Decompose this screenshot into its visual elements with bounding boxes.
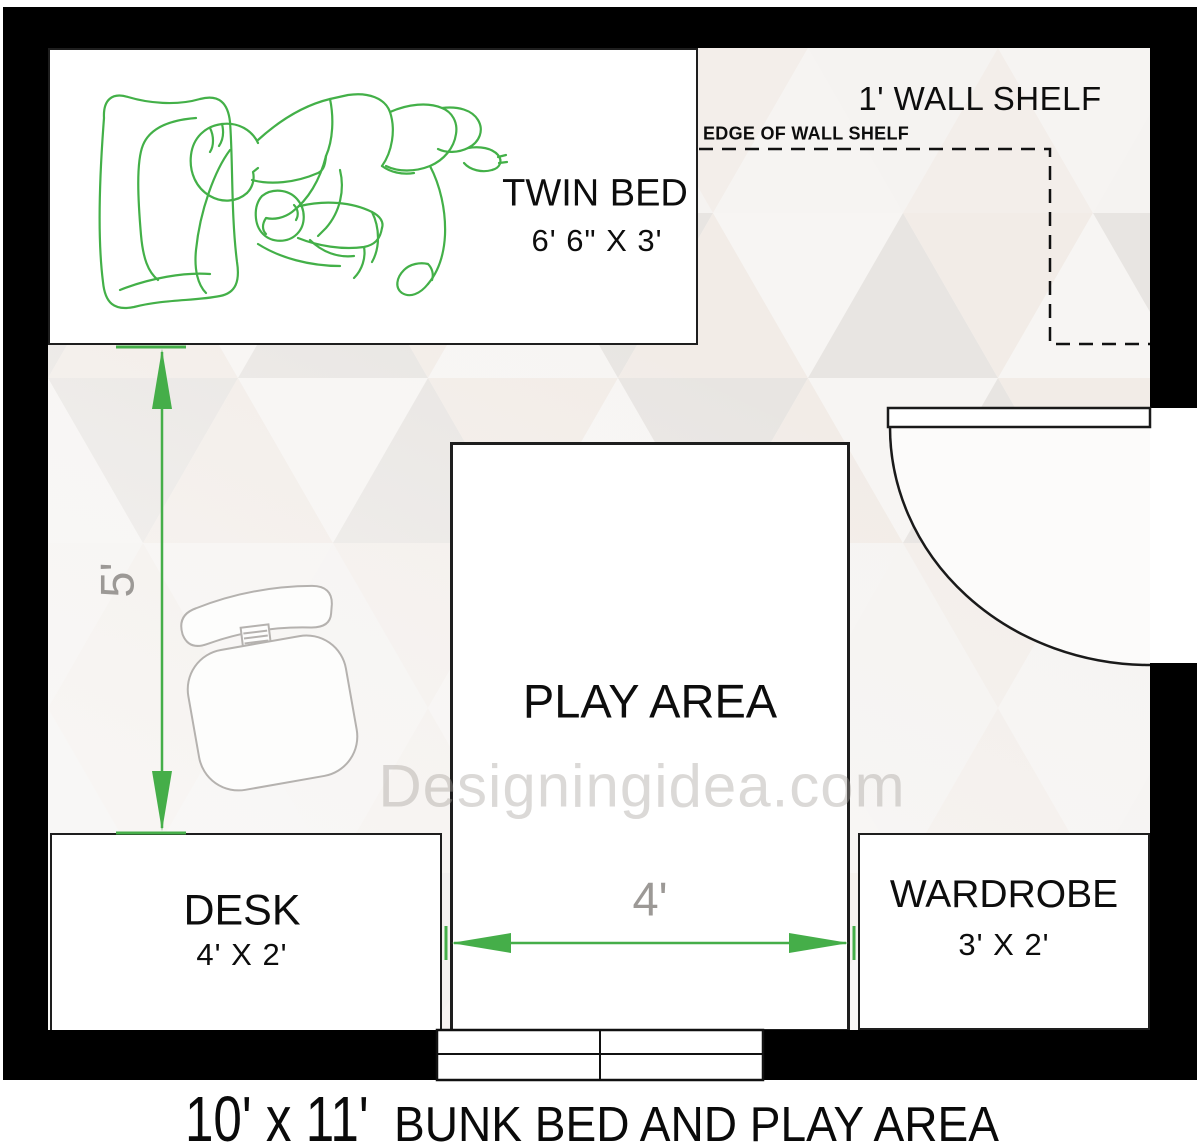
play-area-label: PLAY AREA: [523, 674, 777, 729]
window-icon: [437, 1030, 763, 1080]
wall-shelf-label: 1' WALL SHELF: [858, 80, 1101, 118]
twin-bed-label: TWIN BED: [502, 173, 688, 216]
plan-title-dimensions: 10' x 11': [185, 1082, 369, 1147]
wall-right-lower: [1150, 663, 1197, 1080]
wall-left: [3, 7, 48, 1080]
wardrobe-label: WARDROBE: [890, 873, 1118, 917]
wall-right-upper: [1150, 7, 1197, 408]
twin-bed-size: 6' 6" X 3': [531, 223, 662, 259]
watermark: Designingidea.com: [378, 752, 905, 821]
play-area: [450, 442, 850, 1032]
wall-bottom-left: [3, 1030, 437, 1080]
desk-label: DESK: [183, 887, 300, 936]
left-height-dimension-label: 5': [90, 562, 145, 597]
floor-plan: TWIN BED 6' 6" X 3' 1' WALL SHELF EDGE O…: [0, 0, 1200, 1147]
wardrobe-size: 3' X 2': [958, 927, 1049, 963]
desk-size: 4' X 2': [196, 937, 287, 973]
plan-title-text: BUNK BED AND PLAY AREA: [394, 1097, 999, 1147]
wall-bottom-right: [763, 1030, 1197, 1080]
wall-top: [3, 7, 1197, 48]
play-width-dimension-label: 4': [632, 872, 667, 927]
plan-title: 10' x 11' BUNK BED AND PLAY AREA: [0, 1082, 1200, 1146]
wall-shelf-edge-label: EDGE OF WALL SHELF: [703, 124, 909, 145]
